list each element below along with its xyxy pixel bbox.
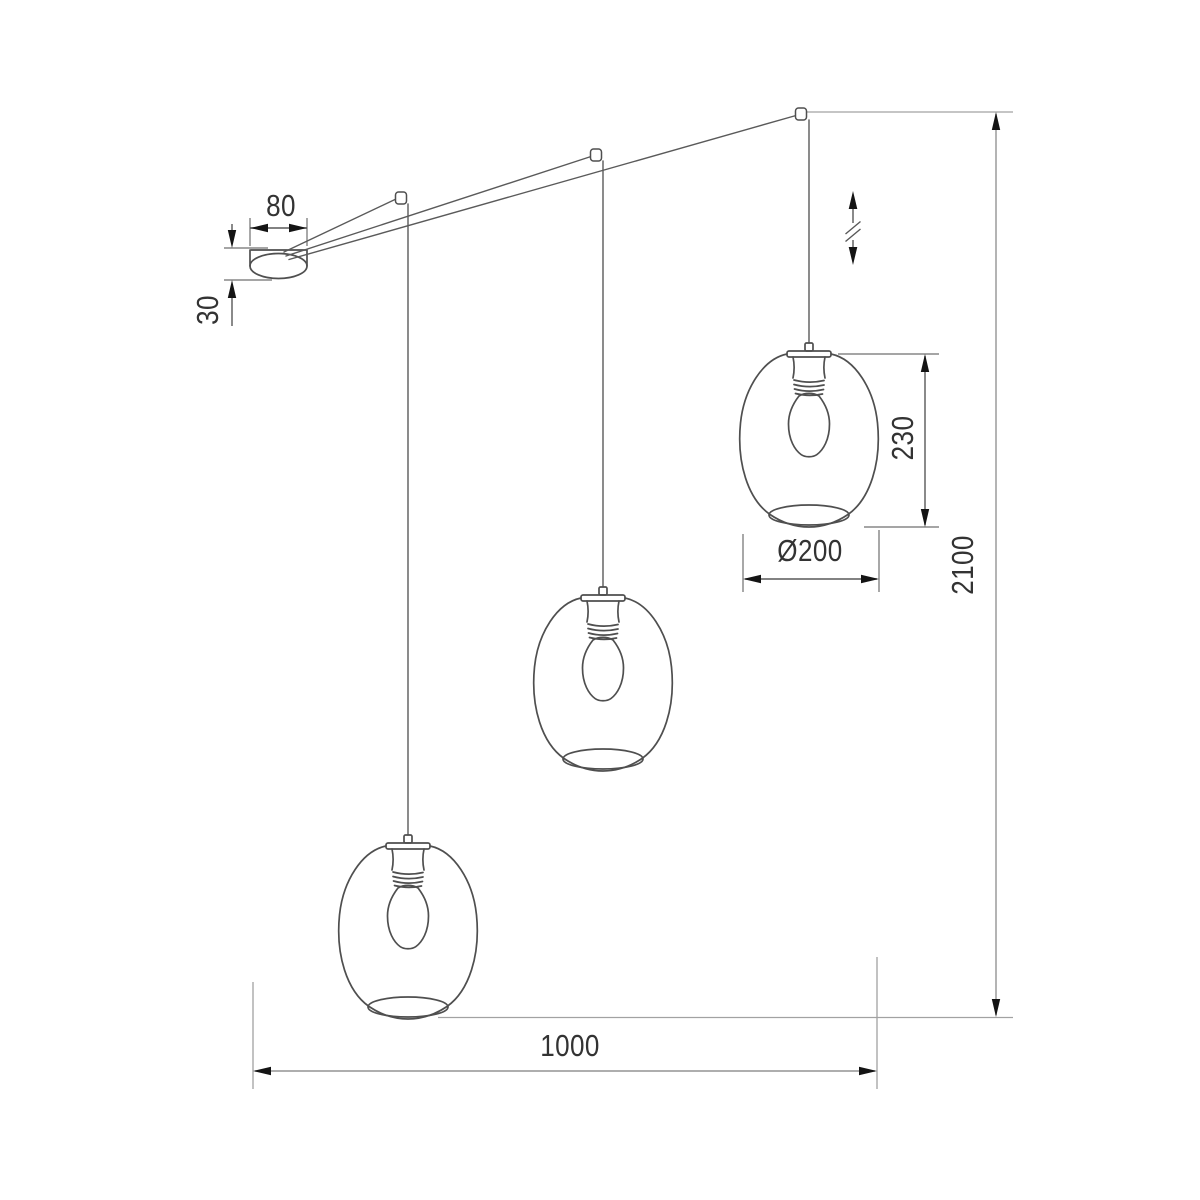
ext-canopy-height [224,248,272,280]
pendant-shade-right [740,343,879,527]
dim-shade-diameter [743,575,879,583]
pendant-shade-middle [534,587,673,771]
ext-overall-height [438,112,1013,1018]
dim-overall-width [253,1067,877,1075]
cable-canopy-to-hook-2 [286,157,591,257]
dim-label-canopy-width: 80 [266,188,296,224]
pendant-shade-left [339,835,478,1019]
ceiling-hook-1 [396,192,407,204]
suspension-cables [284,116,809,836]
dim-canopy-height [228,224,236,326]
height-adjust-symbol [846,191,861,265]
pendant-shades [339,343,879,1019]
dim-overall-height [992,112,1000,1017]
dim-label-overall-height: 2100 [945,535,981,595]
drawing-linework [0,0,1200,1200]
dim-label-shade-diameter: Ø200 [777,533,842,569]
ceiling-canopy [250,250,307,279]
dim-canopy-width [250,224,307,232]
dim-label-overall-width: 1000 [540,1028,600,1064]
ceiling-hooks [396,108,807,204]
dim-shade-height [921,354,929,527]
dim-label-shade-height: 230 [885,416,921,461]
ceiling-hook-2 [591,149,602,161]
cable-canopy-to-hook-3 [289,116,796,260]
ceiling-hook-3 [796,108,807,120]
technical-drawing-canvas: 80 30 230 Ø200 2100 1000 [0,0,1200,1200]
dim-label-canopy-height: 30 [190,295,226,325]
